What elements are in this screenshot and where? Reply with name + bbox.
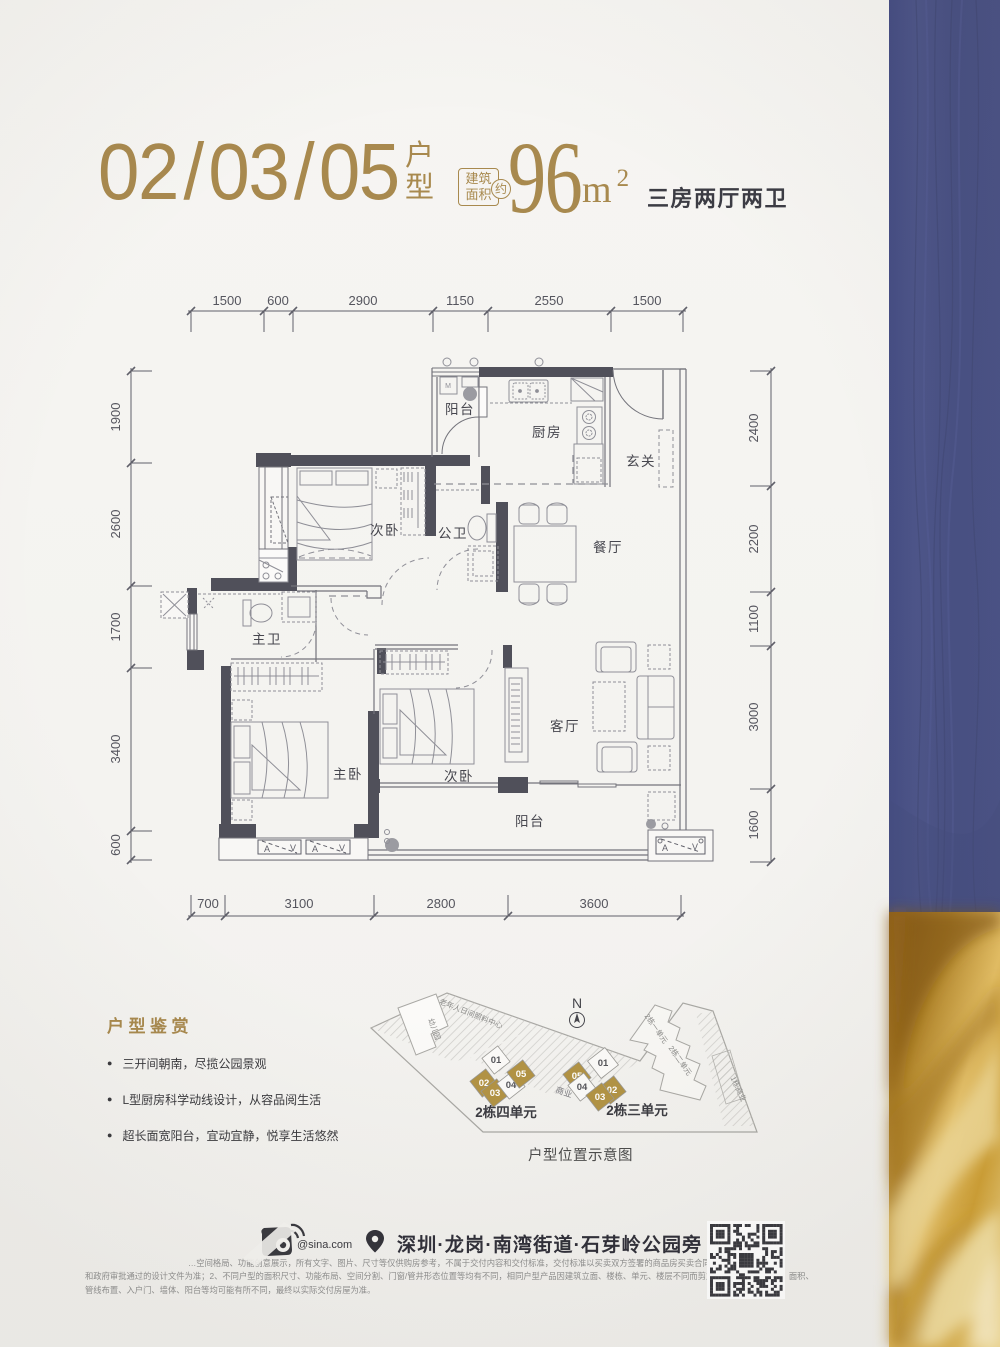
svg-text:04: 04 bbox=[577, 1082, 588, 1093]
svg-text:2800: 2800 bbox=[427, 896, 456, 911]
svg-text:客厅: 客厅 bbox=[550, 718, 580, 734]
svg-text:V: V bbox=[290, 843, 296, 853]
svg-text:M: M bbox=[445, 383, 451, 390]
svg-text:1500: 1500 bbox=[213, 293, 242, 308]
svg-text:01: 01 bbox=[491, 1055, 502, 1066]
svg-text:阳台: 阳台 bbox=[515, 814, 545, 829]
svg-text:03: 03 bbox=[595, 1092, 606, 1103]
svg-text:2600: 2600 bbox=[108, 510, 123, 539]
svg-text:3000: 3000 bbox=[746, 703, 761, 732]
svg-text:阳台: 阳台 bbox=[445, 402, 475, 417]
svg-text:公卫: 公卫 bbox=[438, 526, 468, 541]
svg-text:03: 03 bbox=[490, 1088, 501, 1099]
svg-text:1600: 1600 bbox=[746, 811, 761, 840]
svg-text:A: A bbox=[264, 844, 270, 854]
svg-text:600: 600 bbox=[108, 834, 123, 856]
svg-text:05: 05 bbox=[516, 1069, 527, 1080]
svg-text:A: A bbox=[662, 843, 668, 853]
svg-text:厨房: 厨房 bbox=[532, 425, 562, 440]
svg-text:600: 600 bbox=[267, 293, 289, 308]
svg-text:次卧: 次卧 bbox=[444, 769, 474, 784]
svg-text:1700: 1700 bbox=[108, 613, 123, 642]
svg-text:3600: 3600 bbox=[580, 896, 609, 911]
svg-text:A: A bbox=[312, 844, 318, 854]
svg-text:V: V bbox=[339, 843, 345, 853]
svg-text:1900: 1900 bbox=[108, 403, 123, 432]
svg-text:主卫: 主卫 bbox=[252, 632, 282, 647]
svg-text:V: V bbox=[692, 842, 698, 852]
svg-text:3400: 3400 bbox=[108, 735, 123, 764]
svg-text:餐厅: 餐厅 bbox=[593, 540, 623, 555]
svg-text:N: N bbox=[572, 995, 582, 1011]
svg-text:1500: 1500 bbox=[633, 293, 662, 308]
svg-text:1100: 1100 bbox=[746, 605, 761, 633]
svg-text:2栋四单元: 2栋四单元 bbox=[475, 1104, 537, 1120]
svg-text:2550: 2550 bbox=[535, 293, 564, 308]
svg-text:主卧: 主卧 bbox=[333, 767, 363, 782]
svg-text:3100: 3100 bbox=[285, 896, 314, 911]
svg-text:1150: 1150 bbox=[446, 293, 474, 308]
svg-text:01: 01 bbox=[598, 1058, 609, 1069]
svg-text:2900: 2900 bbox=[349, 293, 378, 308]
svg-text:700: 700 bbox=[197, 896, 219, 911]
svg-text:次卧: 次卧 bbox=[370, 523, 400, 538]
svg-text:2400: 2400 bbox=[746, 414, 761, 443]
svg-text:2200: 2200 bbox=[746, 525, 761, 554]
svg-text:玄关: 玄关 bbox=[626, 453, 656, 469]
svg-text:2栋三单元: 2栋三单元 bbox=[606, 1102, 668, 1118]
